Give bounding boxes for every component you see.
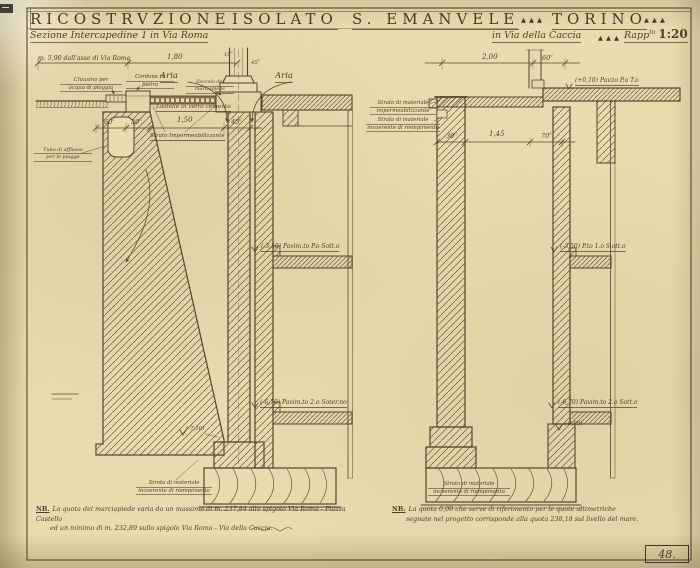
corner-stamp [0,4,13,13]
note-left-nb: NB. [36,505,49,513]
left-section-linework [35,48,353,510]
dim-1-80: 1,80 [167,53,183,61]
level-left-secondo-sotterraneo: (-6,70) Pavim.to 2.o Soter.no [260,399,347,408]
label-strato-impermeabilizzante-right: Strato di materialeimpermeabilizzante [370,100,436,115]
sheet-number: 48. [645,545,689,563]
level-piano-terreno: (+0,10) Pav.to P.o T.o [575,77,639,86]
dim-60c: 60c [104,118,115,126]
note-right-line1: La quota 0,00 che serve di riferimento p… [408,505,615,513]
label-zoccolo: Zoccolo delmarciapiede [186,80,234,94]
dim-45c: 45c [231,118,242,126]
note-right: NB.La quota 0,00 che serve di riferiment… [392,505,688,524]
level-right-secondo-sotterraneo: (-6,70) Pavim.to 2.o Sott.o [558,399,637,408]
title-word-2: ISOLATO [232,10,338,30]
dim-30c-right: 30c [446,132,457,140]
note-right-nb: NB. [392,505,405,513]
dim-45c-column: 45c [251,60,260,66]
title-word-1: RICOSTRVZIONE [30,10,231,30]
dim-15c: 15c [224,52,233,58]
triangles-subtitle: ▲▲▲ [598,34,622,42]
label-strato-impermeabilizzante: Strato Impermeabilizzante [150,133,225,141]
label-fill-right: Strato di materialeincoerente di riempim… [428,481,510,496]
right-section-linework [252,50,680,531]
scale-label: Rappto 1:20 [624,27,688,43]
label-cordone: Cordone inpietra [126,74,174,89]
title-word-3: S. EMANVELE [352,10,519,30]
level-right-primo-sotterraneo: (-3,50) P.to 1.o S.ott.o [560,243,626,252]
dim-70c: 70c [541,132,552,140]
dim-60c-right: 60c [542,54,553,62]
dim-2-00: 2,00 [482,53,498,61]
subtitle-left: Sezione Intercapedine 1 in Via Roma [30,30,208,43]
subtitle-right: in Via della Caccia [492,30,581,43]
triangles-right-of-city: ▲▲▲ [644,16,668,24]
dim-30c: 30c [131,118,142,126]
label-chiusino: Chiusino peracqua di pioggia [60,77,122,92]
note-right-line2: segnate nel progetto corrisponde alla qu… [406,515,638,523]
label-offset-via-roma: m. 5,90 dall'asse di Via Roma [38,55,130,62]
dim-1-50: 1,50 [177,116,193,124]
note-left-line1: La quota del marciapiede varia da un mas… [36,505,346,523]
label-lastelle: Lastelle in vetro cemento [156,104,231,112]
label-fill-left: Strato di materialeincoerente di riempim… [136,480,212,495]
note-left: NB.La quota del marciapiede varia da un … [36,505,356,534]
drawing-sheet: RICOSTRVZIONE ISOLATO S. EMANVELE ▲▲▲ TO… [0,0,700,568]
level-left-7-10: (-7,10) [186,426,204,432]
label-tubo-afflusso: Tubo di afflussoper le piogge [34,147,92,162]
level-right-6-95: (-6,95) [564,421,582,427]
label-strato-incoerente-right: Strato di materialeincoerente di riempim… [366,117,440,132]
dim-1-45: 1,45 [489,130,505,138]
label-aria-right: Aria [275,71,293,83]
note-left-line2: ed un minimo di m. 232,89 sullo spigolo … [50,524,273,532]
level-left-primo-sotterraneo: (-3,50) Pavim.to P.o Sott.o [261,243,339,252]
triangles-left-of-city: ▲▲▲ [521,16,545,24]
